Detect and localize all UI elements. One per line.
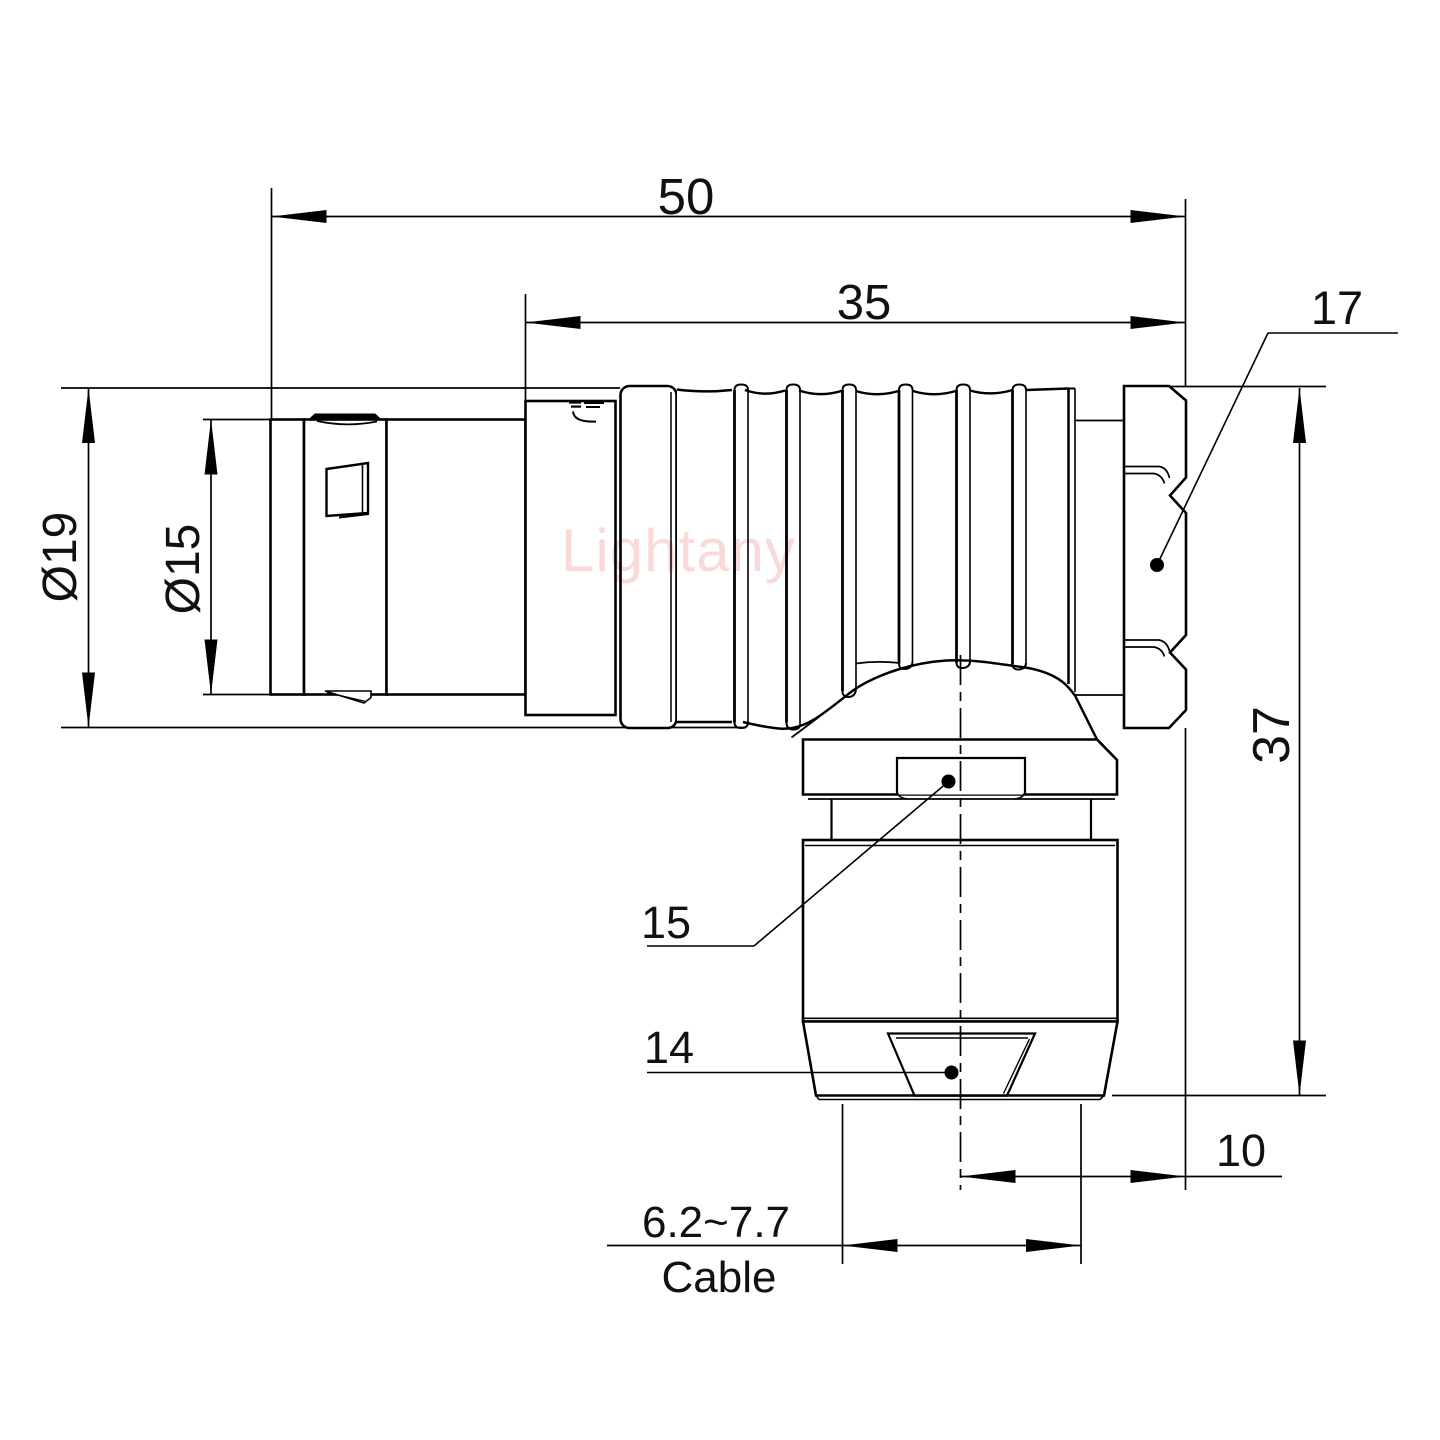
svg-text:6.2~7.7: 6.2~7.7	[642, 1198, 790, 1247]
svg-text:17: 17	[1311, 281, 1363, 334]
svg-text:50: 50	[658, 168, 715, 225]
svg-text:Cable: Cable	[662, 1253, 777, 1302]
svg-text:Lightany: Lightany	[561, 517, 796, 584]
svg-text:Ø19: Ø19	[34, 512, 87, 603]
svg-text:14: 14	[644, 1022, 694, 1073]
svg-text:Ø15: Ø15	[157, 524, 210, 615]
svg-text:37: 37	[1243, 706, 1301, 764]
svg-text:15: 15	[641, 897, 691, 948]
svg-text:35: 35	[837, 276, 892, 330]
svg-text:10: 10	[1216, 1125, 1266, 1176]
